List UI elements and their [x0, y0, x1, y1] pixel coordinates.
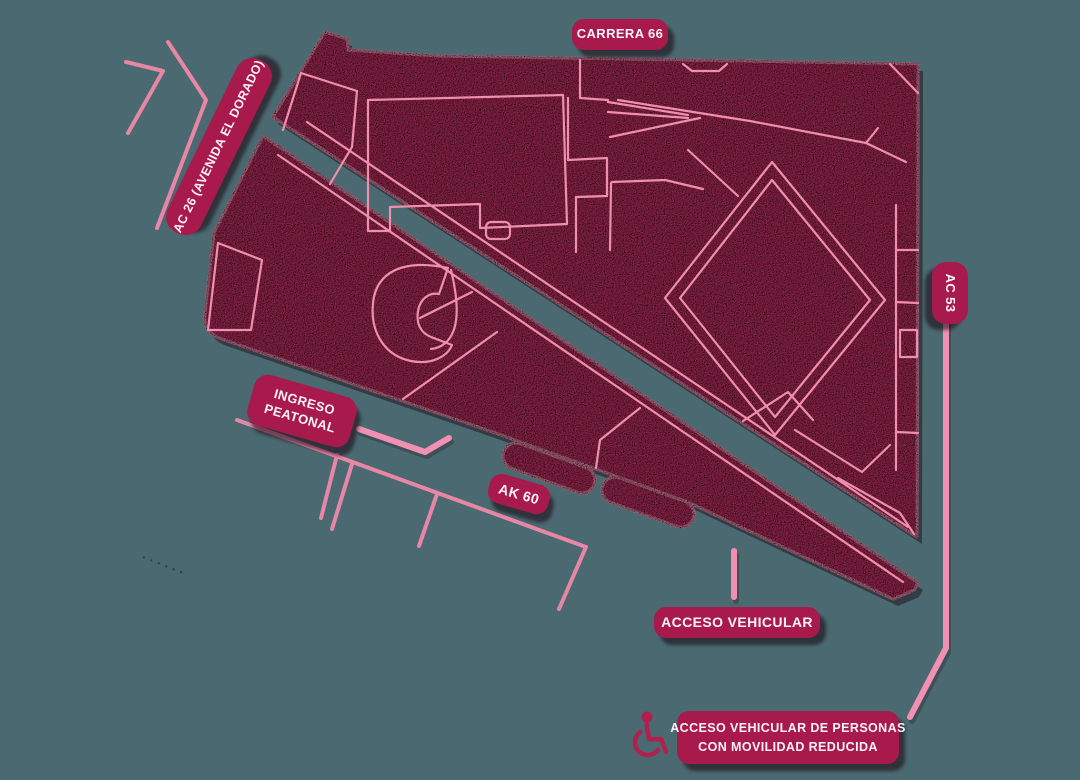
- label-carrera-66: CARRERA 66: [572, 19, 668, 50]
- map-canvas: [0, 0, 1080, 780]
- label-acceso-vehicular-text: ACCESO VEHICULAR: [661, 613, 813, 631]
- city-blocks: [205, 32, 918, 599]
- label-acceso-movilidad-line1: ACCESO VEHICULAR DE PERSONAS: [670, 719, 906, 737]
- wheelchair-icon: [628, 710, 670, 762]
- label-ak-60-text: AK 60: [496, 480, 541, 509]
- label-acceso-movilidad-reducida: ACCESO VEHICULAR DE PERSONAS CON MOVILID…: [677, 711, 899, 764]
- label-carrera-66-text: CARRERA 66: [577, 26, 664, 43]
- wheelchair-icon-graphic: [628, 710, 670, 762]
- label-acceso-vehicular: ACCESO VEHICULAR: [654, 607, 820, 638]
- access-map: CARRERA 66 AC 26 (AVENIDA EL DORADO) AC …: [0, 0, 1080, 780]
- label-acceso-movilidad-line2: CON MOVILIDAD REDUCIDA: [698, 738, 878, 756]
- label-ac-53: AC 53: [932, 262, 968, 324]
- label-ac-53-text: AC 53: [942, 274, 959, 313]
